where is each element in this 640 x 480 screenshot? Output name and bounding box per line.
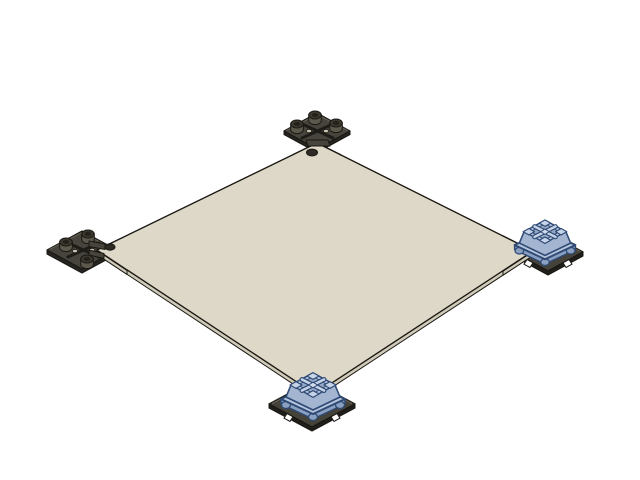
plate-corner-hole <box>307 149 318 156</box>
bracket-hole <box>306 129 311 132</box>
bracket-hole <box>72 249 77 252</box>
bracket-boss <box>291 120 304 134</box>
bracket-boss <box>309 111 322 125</box>
bracket-boss <box>60 238 73 252</box>
bracket-boss <box>330 119 343 133</box>
plate-corner-hole <box>105 244 115 250</box>
bracket-slot-tab <box>306 140 330 146</box>
bracket-boss <box>81 255 94 269</box>
bracket-hole <box>323 129 328 132</box>
cad-viewport[interactable] <box>0 0 640 480</box>
